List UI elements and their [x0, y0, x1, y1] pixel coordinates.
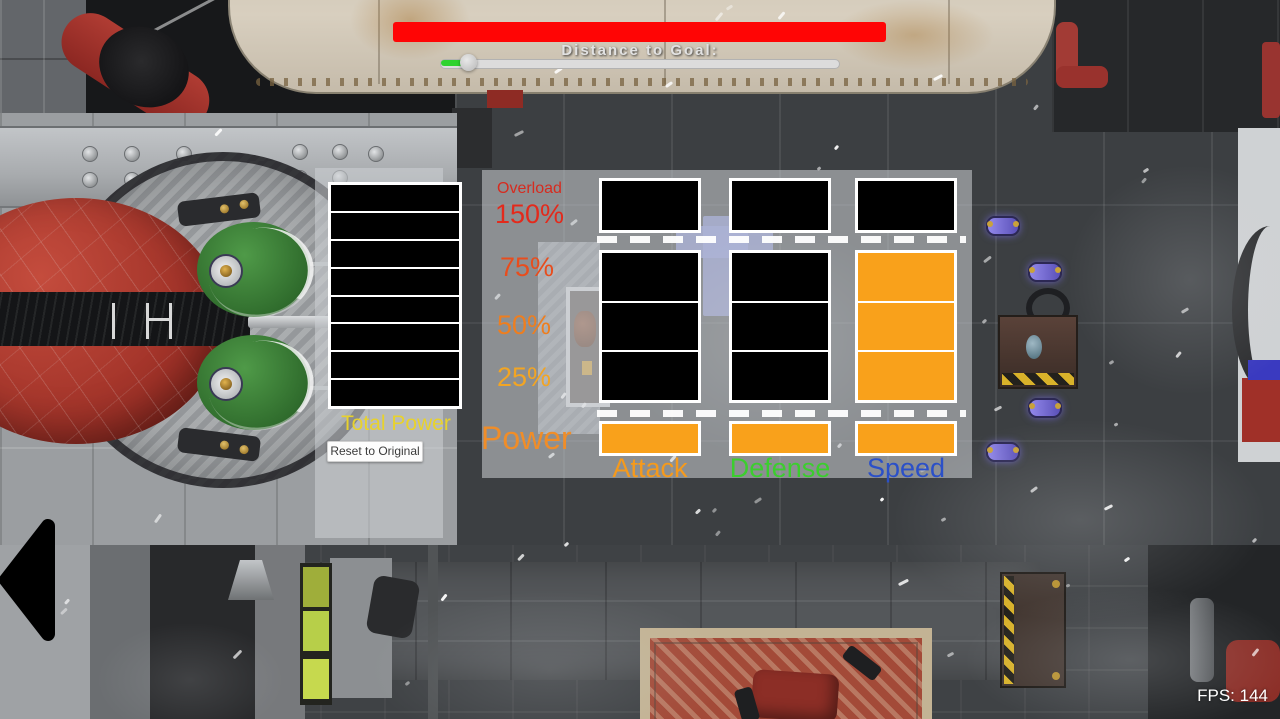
total-power-segment [331, 324, 459, 350]
base-power-cell-defense[interactable] [729, 421, 831, 456]
pole-prop [428, 545, 438, 719]
power-cell[interactable] [858, 303, 954, 351]
overload-cell-speed[interactable] [855, 178, 957, 233]
total-power-segment [331, 185, 459, 211]
scale-label: Power [481, 420, 572, 457]
power-cells-speed [855, 250, 957, 403]
purple-light [1028, 398, 1062, 418]
total-power-gauge [328, 182, 462, 409]
total-power-segment [331, 380, 459, 406]
reset-button[interactable]: Reset to Original [327, 441, 423, 462]
purple-light [1028, 262, 1062, 282]
scale-label: 150% [495, 199, 564, 230]
robot-pod-top [197, 222, 310, 317]
red-pipe-elbow [1056, 66, 1108, 88]
base-power-cell-attack[interactable] [599, 421, 701, 456]
base-power-cell-speed[interactable] [855, 421, 957, 456]
total-power-segment [331, 269, 459, 295]
column-label-attack: Attack [595, 453, 705, 484]
power-cell[interactable] [732, 303, 828, 351]
distance-slider-handle[interactable] [460, 54, 477, 71]
hazard-crate [1000, 572, 1066, 688]
column-label-speed: Speed [851, 453, 961, 484]
power-threshold-line [597, 410, 966, 417]
purple-light [986, 442, 1020, 462]
hazard-machine [998, 315, 1078, 389]
power-cell[interactable] [732, 352, 828, 400]
game-screen: Total Power Reset to Original Overload15… [0, 0, 1280, 719]
total-power-segment [331, 213, 459, 239]
power-cell[interactable] [602, 253, 698, 301]
bottom-left-wall [90, 545, 150, 719]
scale-label: 25% [497, 362, 551, 393]
power-cell[interactable] [602, 352, 698, 400]
total-power-segment [331, 241, 459, 267]
total-power-segment [331, 352, 459, 378]
power-cells-attack [599, 250, 701, 403]
back-button[interactable] [0, 512, 58, 648]
dark-pillar [452, 108, 492, 168]
power-cell[interactable] [602, 303, 698, 351]
right-machine-red [1242, 378, 1280, 442]
bottom-right-cylinder [1190, 598, 1214, 682]
distance-slider-track [440, 59, 840, 69]
scale-label: 75% [500, 252, 554, 283]
distance-to-goal-label: Distance to Goal: [0, 42, 1280, 59]
power-cell[interactable] [858, 253, 954, 301]
fps-counter: FPS: 144 [1197, 686, 1268, 706]
total-power-segment [331, 297, 459, 323]
health-bar [393, 22, 886, 42]
scale-label: 50% [497, 310, 551, 341]
overload-threshold-line [597, 236, 966, 243]
red-machinery [487, 90, 523, 108]
robot-pod-bottom [197, 335, 310, 430]
scale-label: Overload [497, 180, 562, 198]
overload-cell-attack[interactable] [599, 178, 701, 233]
power-cell[interactable] [732, 253, 828, 301]
total-power-label: Total Power [316, 412, 476, 436]
green-window [300, 563, 332, 705]
right-machine-blue [1248, 360, 1280, 380]
purple-light [986, 216, 1020, 236]
overload-cell-defense[interactable] [729, 178, 831, 233]
column-label-defense: Defense [725, 453, 835, 484]
power-cells-defense [729, 250, 831, 403]
armchair [750, 669, 839, 719]
power-cell[interactable] [858, 352, 954, 400]
